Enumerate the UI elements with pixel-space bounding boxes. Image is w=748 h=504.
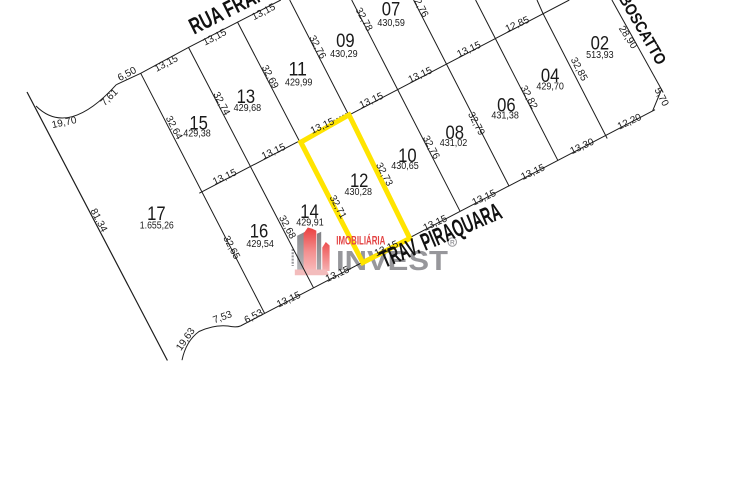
svg-text:429,38: 429,38 (183, 128, 211, 139)
svg-text:430,29: 430,29 (330, 49, 358, 60)
svg-text:431,38: 431,38 (491, 111, 519, 122)
svg-text:429,68: 429,68 (234, 103, 262, 114)
svg-text:430,65: 430,65 (391, 161, 419, 172)
svg-text:1.655,26: 1.655,26 (140, 221, 174, 232)
svg-text:431,02: 431,02 (440, 138, 468, 149)
svg-text:IMOBILIÁRIA: IMOBILIÁRIA (336, 233, 385, 248)
svg-text:513,93: 513,93 (586, 50, 614, 61)
svg-text:429,54: 429,54 (246, 239, 274, 250)
svg-text:429,91: 429,91 (296, 217, 324, 228)
svg-text:430,28: 430,28 (345, 187, 373, 198)
svg-text:430,59: 430,59 (377, 18, 405, 29)
svg-text:429,99: 429,99 (285, 78, 313, 89)
svg-text:429,70: 429,70 (536, 82, 564, 93)
